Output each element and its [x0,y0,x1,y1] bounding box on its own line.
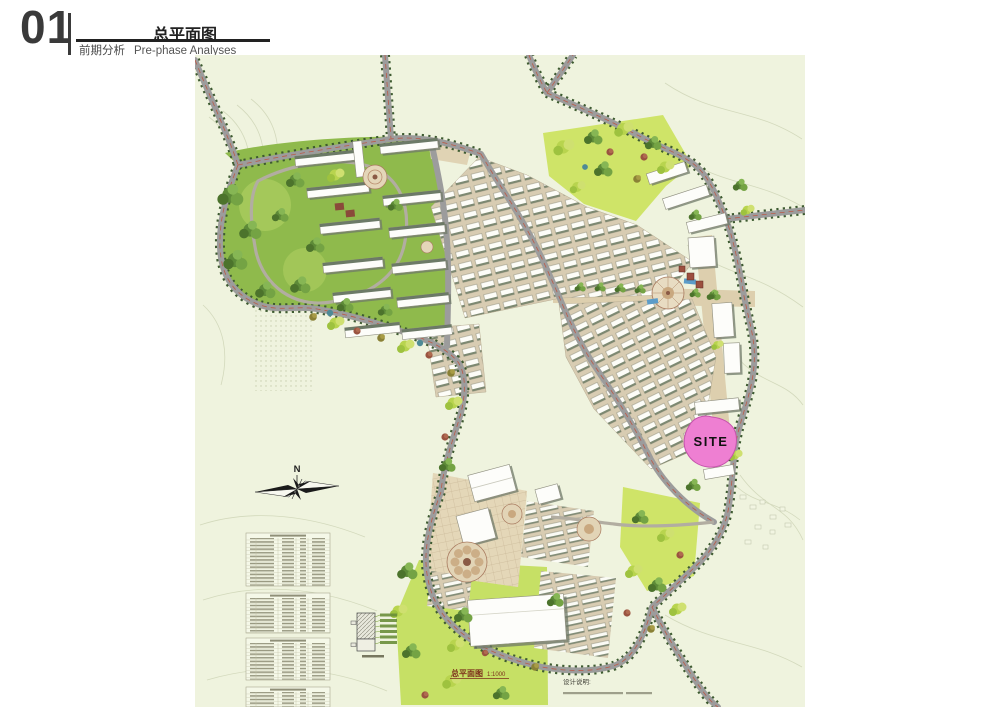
axis-roundabout [652,277,684,309]
indicator-table-4 [246,687,330,707]
caption-title: 总平面图 [451,668,483,678]
site-label: SITE [694,434,729,449]
north-label: N [294,464,301,475]
mandala-plaza [447,542,487,582]
chapter-number: 01 [20,4,73,50]
indicator-table-1 [246,533,330,586]
indicator-table-3 [246,638,330,680]
site-marker: SITE [684,416,736,467]
indicator-table-2 [246,593,330,633]
subtitle-cn: 前期分析 [79,45,125,57]
caption-scale: 1:1000 [487,672,506,678]
presentation-slide: 01 总平面图 前期分析Pre-phase Analyses [0,0,1000,707]
master-plan-map: SITE N [195,55,805,707]
header-divider-bar [68,13,71,55]
design-notes-title: 设计说明: [563,677,591,686]
